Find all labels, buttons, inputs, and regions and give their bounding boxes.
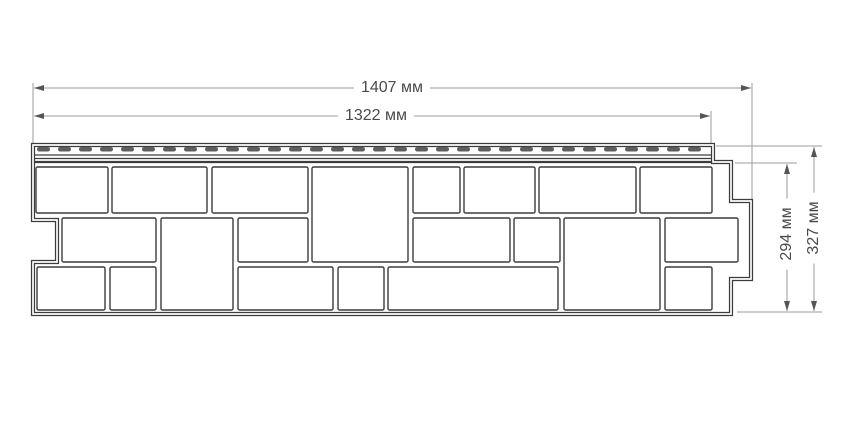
dim-label-total-width: 1407 мм <box>354 79 430 97</box>
panel-drawing <box>0 0 850 425</box>
technical-drawing-canvas: 1407 мм 1322 мм 294 мм 327 мм <box>0 0 850 425</box>
dim-label-total-height: 327 мм <box>805 192 823 263</box>
dim-label-body-height: 294 мм <box>778 198 796 269</box>
dim-label-nailing-width: 1322 мм <box>338 107 414 125</box>
